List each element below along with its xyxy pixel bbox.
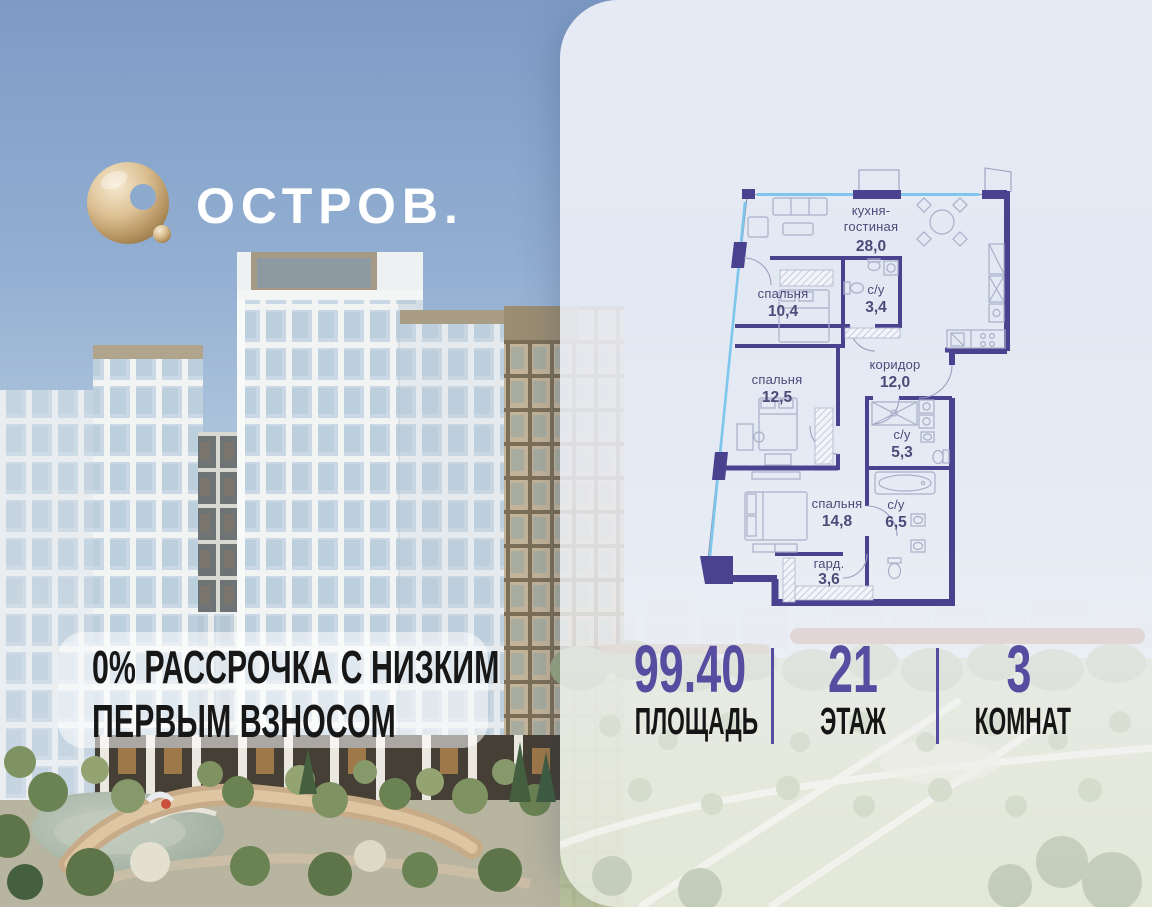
room-label: с/у (867, 282, 885, 297)
stat-area-label: ПЛОЩАДЬ (635, 707, 745, 737)
promo-line-2: ПЕРВЫМ ВЗНОСОМ (92, 694, 396, 748)
stat-rooms-value: 3 (969, 640, 1068, 700)
stat-area: 99.40 ПЛОЩАДЬ (598, 640, 782, 737)
stat-area-value: 99.40 (628, 640, 751, 700)
room-label: гостиная (844, 219, 898, 234)
room-area: 3,4 (865, 299, 887, 316)
room-label: спальня (812, 496, 863, 511)
room-area: 3,6 (818, 571, 840, 588)
brand-logo: ОСТРОВ. (84, 158, 514, 258)
stat-rooms: 3 КОМНАТ (945, 640, 1093, 737)
room-area: 12,0 (880, 374, 910, 391)
balconies (859, 168, 1011, 192)
floor-plan: кухня- гостиная 28,0 спальня 10,4 с/у 3,… (695, 158, 1015, 630)
room-area: 28,0 (856, 238, 886, 255)
stats-divider (771, 648, 774, 744)
stat-rooms-label: КОМНАТ (975, 707, 1064, 737)
room-area: 14,8 (822, 513, 853, 530)
room-area: 5,3 (891, 444, 913, 461)
brand-logo-icon (84, 158, 184, 253)
wall-blocks (700, 189, 1007, 584)
room-label: кухня- (852, 203, 891, 218)
stats-divider (936, 648, 939, 744)
room-label: коридор (869, 357, 920, 372)
room-label: с/у (887, 497, 905, 512)
promo-badge: 0% РАССРОЧКА С НИЗКИМ ПЕРВЫМ ВЗНОСОМ (58, 632, 488, 748)
room-label: гард. (814, 556, 845, 571)
room-area: 6,5 (885, 514, 907, 531)
room-label: спальня (758, 286, 809, 301)
room-label: спальня (752, 372, 803, 387)
stat-floor: 21 ЭТАЖ (779, 640, 927, 737)
real-estate-banner: кухня- гостиная 28,0 спальня 10,4 с/у 3,… (0, 0, 1152, 907)
room-label: с/у (893, 427, 911, 442)
promo-line-1: 0% РАССРОЧКА С НИЗКИМ (92, 640, 499, 694)
stat-floor-value: 21 (803, 640, 902, 700)
room-area: 10,4 (768, 303, 799, 320)
brand-name: ОСТРОВ. (196, 182, 464, 230)
stat-floor-label: ЭТАЖ (809, 707, 898, 737)
room-area: 12,5 (762, 389, 793, 406)
